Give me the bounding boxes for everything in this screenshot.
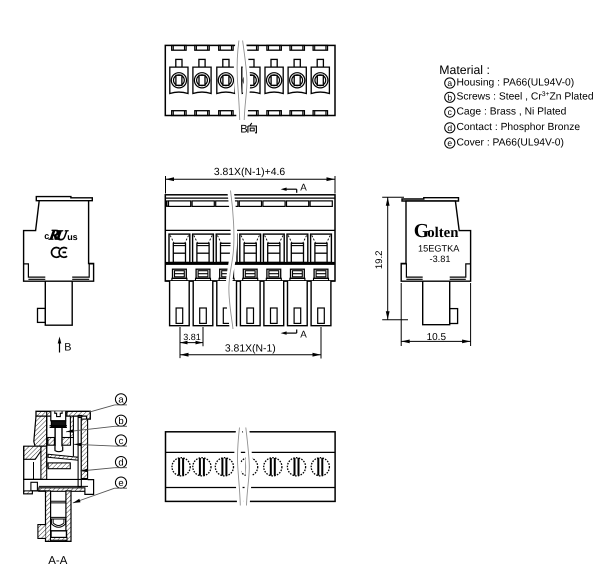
svg-text:a: a [118, 395, 124, 406]
svg-text:us: us [67, 232, 78, 242]
svg-text:b: b [118, 416, 123, 427]
svg-text:3.81: 3.81 [183, 332, 201, 342]
svg-text:Cage : Brass , Ni Plated: Cage : Brass , Ni Plated [457, 106, 567, 117]
svg-text:-3.81: -3.81 [430, 254, 451, 264]
svg-text:a: a [447, 78, 452, 88]
svg-text:A: A [300, 183, 307, 194]
svg-text:Material :: Material : [439, 63, 490, 77]
svg-text:d: d [447, 123, 452, 133]
svg-text:3.81X(N-1): 3.81X(N-1) [225, 343, 276, 354]
svg-text:15EGTKA: 15EGTKA [418, 243, 460, 253]
svg-text:B: B [240, 124, 247, 136]
svg-text:Cover : PA66(UL94V-0): Cover : PA66(UL94V-0) [457, 137, 564, 148]
svg-text:3.81X(N-1)+4.6: 3.81X(N-1)+4.6 [214, 167, 286, 178]
svg-text:Contact : Phosphor Bronze: Contact : Phosphor Bronze [457, 122, 581, 133]
svg-text:Screws : Steel , Cr3+Zn Plated: Screws : Steel , Cr3+Zn Plated [457, 91, 594, 103]
svg-text:B: B [64, 342, 71, 354]
svg-text:10.5: 10.5 [427, 332, 447, 343]
svg-text:Housing : PA66(UL94V-0): Housing : PA66(UL94V-0) [457, 77, 575, 88]
svg-text:e: e [118, 478, 123, 489]
svg-text:19.2: 19.2 [374, 250, 385, 269]
svg-text:c: c [119, 436, 124, 447]
svg-text:e: e [447, 138, 452, 148]
svg-text:olten: olten [427, 225, 458, 241]
svg-text:A-A: A-A [48, 555, 67, 567]
svg-text:c: c [448, 107, 453, 117]
svg-text:d: d [118, 458, 123, 469]
svg-text:A: A [300, 330, 307, 341]
svg-text:b: b [447, 92, 452, 102]
